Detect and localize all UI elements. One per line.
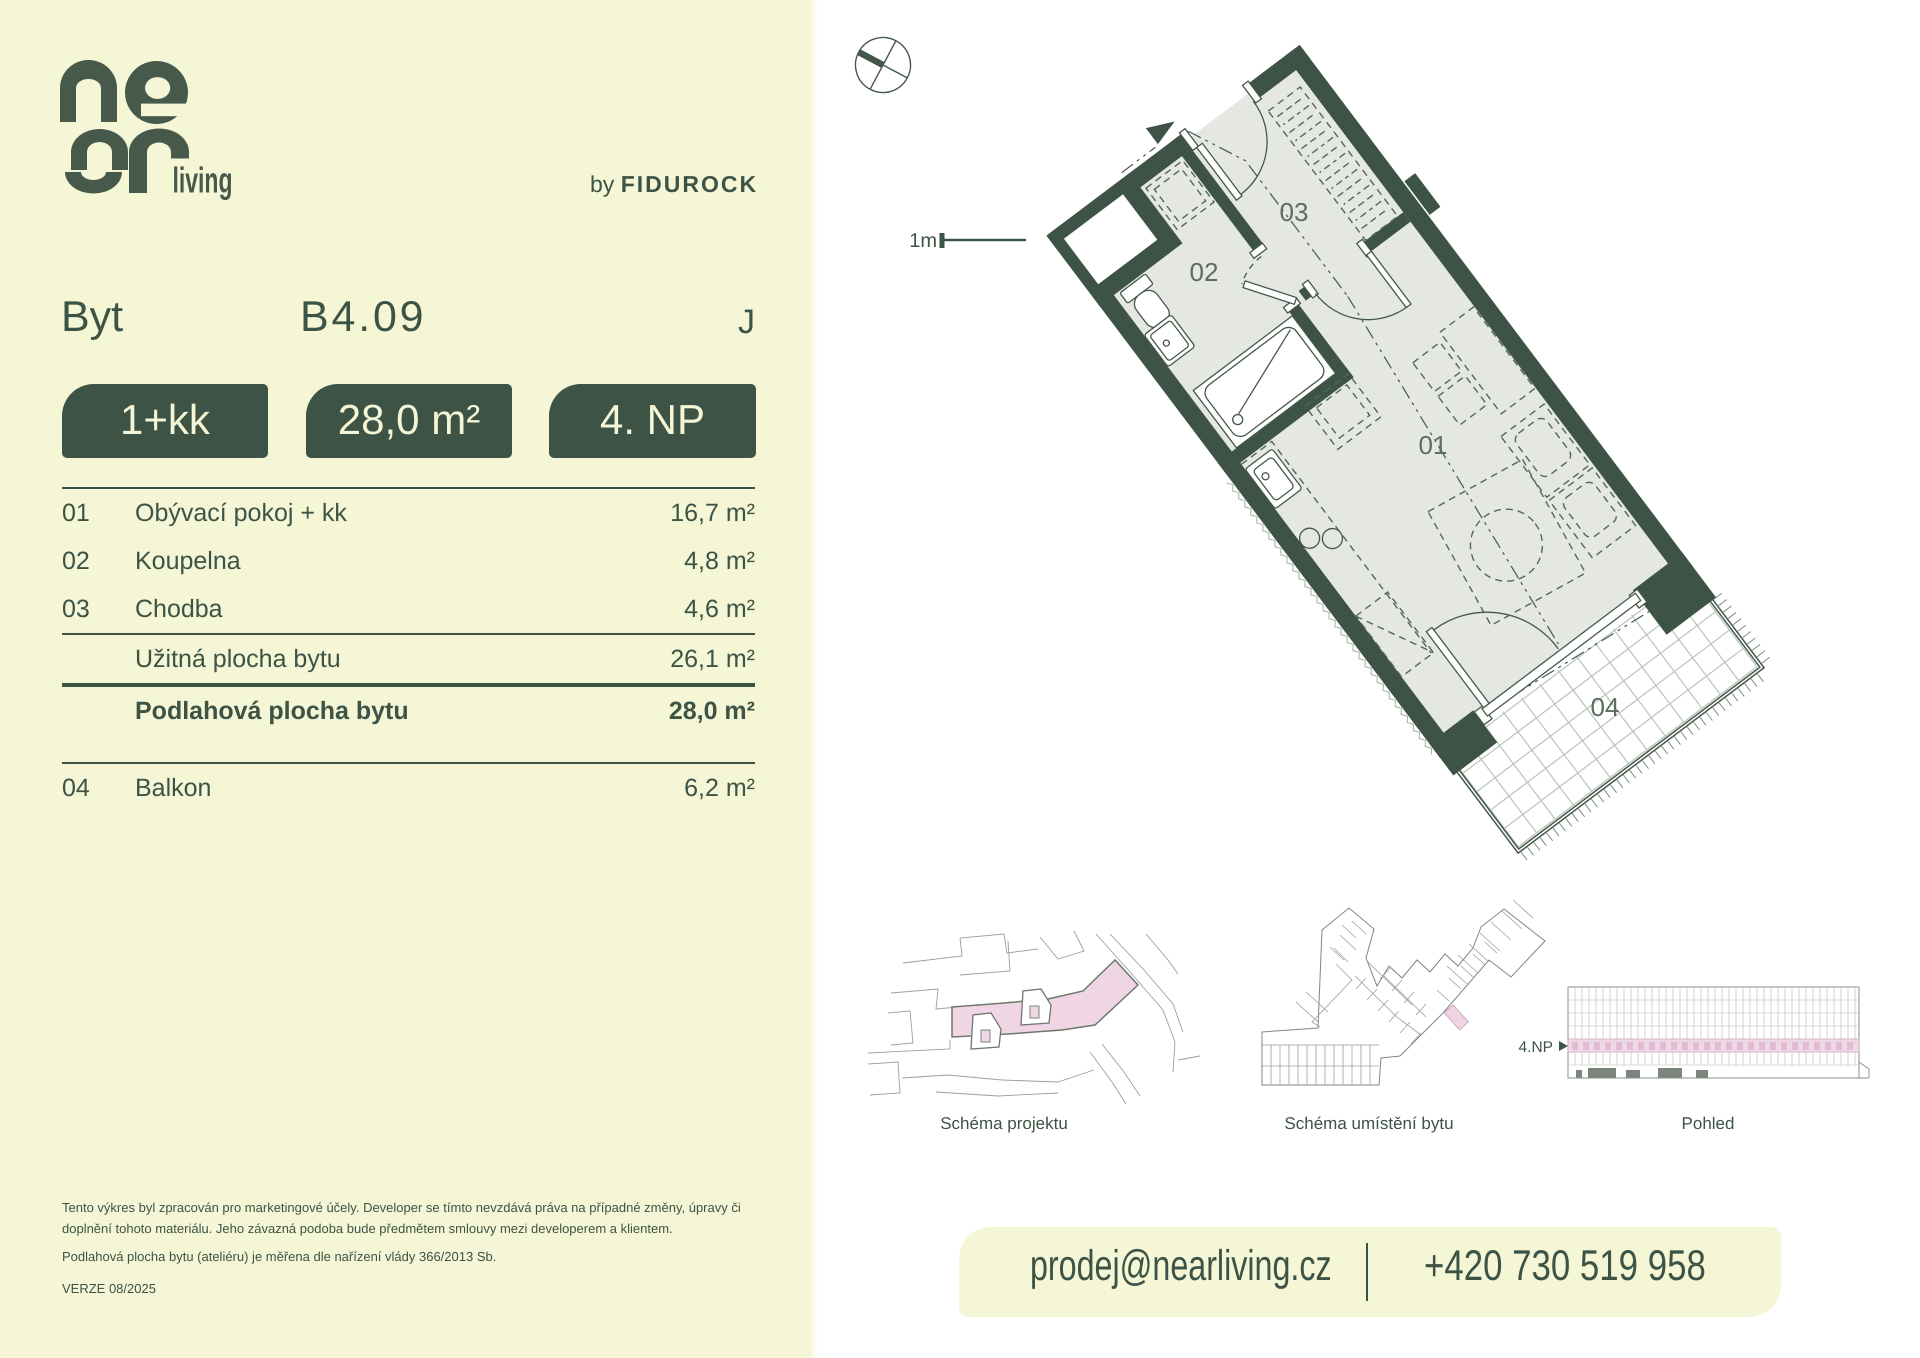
svg-text:1m: 1m — [909, 230, 937, 252]
svg-text:04: 04 — [1591, 692, 1620, 722]
svg-text:4.NP: 4.NP — [1519, 1039, 1553, 1056]
svg-text:02: 02 — [1190, 257, 1219, 287]
svg-text:01: 01 — [1419, 430, 1448, 460]
svg-text:03: 03 — [1280, 197, 1309, 227]
